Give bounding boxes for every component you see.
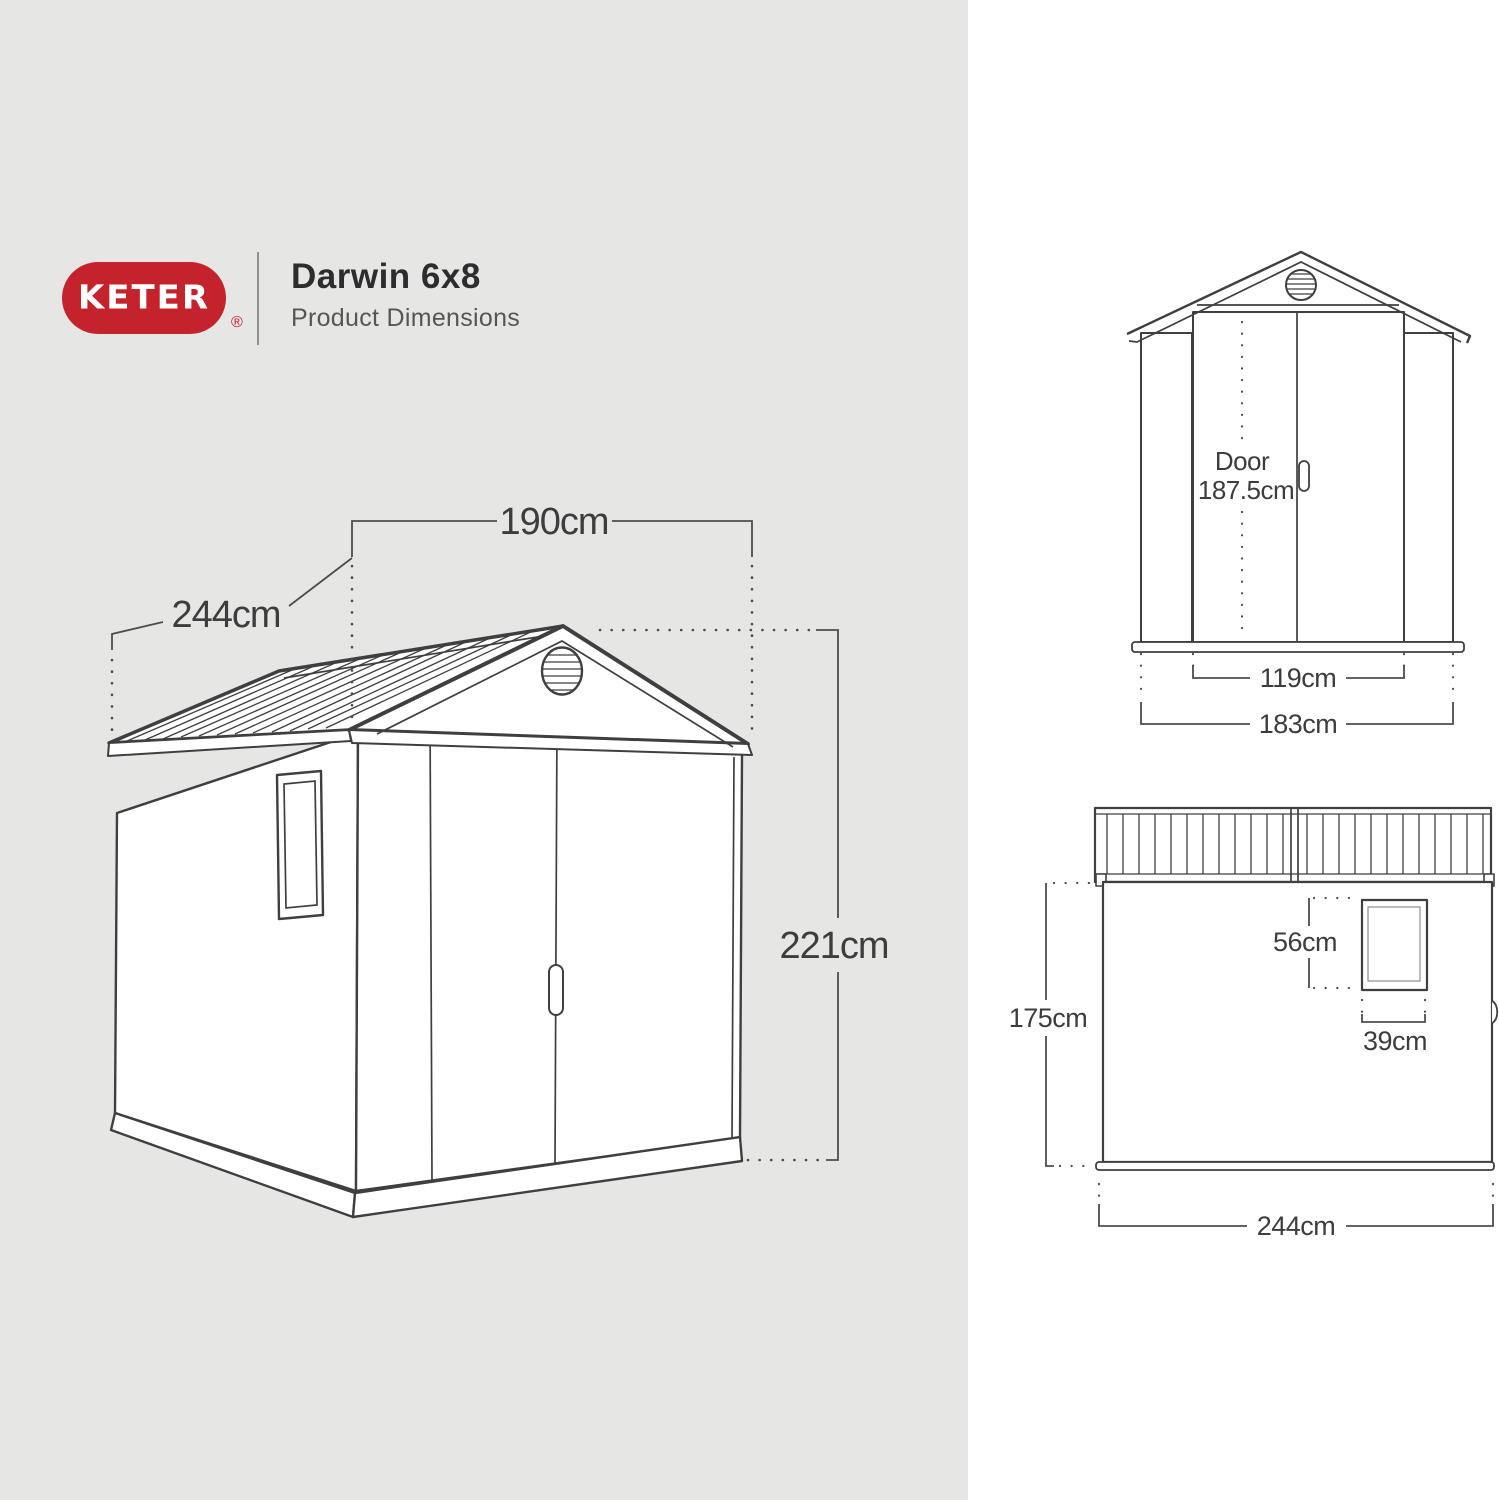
side-elevation-view: 56cm 39cm 175cm 244cm — [1000, 780, 1499, 1250]
dim-door-width-119: 119cm — [1193, 654, 1404, 693]
dim-label-56cm: 56cm — [1273, 927, 1337, 957]
perspective-view: 190cm 244cm 221cm — [60, 460, 900, 1340]
registered-trademark-icon: ® — [231, 314, 243, 332]
keter-logo-text: KETER — [78, 279, 210, 317]
side-base — [1096, 1162, 1494, 1170]
front-wall — [356, 711, 742, 1191]
side-wall-panel — [1103, 882, 1492, 1162]
keter-logo: KETER — [62, 262, 226, 334]
door-label-line2: 187.5cm — [1198, 475, 1294, 505]
side-window-outer-frame — [1362, 900, 1427, 990]
dim-wall-height-175: 175cm — [1009, 883, 1096, 1166]
dim-label-183cm: 183cm — [1259, 709, 1338, 739]
dim-depth-244-side: 244cm — [1099, 1184, 1493, 1241]
header-divider — [257, 252, 259, 345]
side-door-handle-bump — [1492, 1001, 1497, 1023]
front-header-lines — [1193, 305, 1404, 312]
dim-label-221cm: 221cm — [779, 925, 888, 967]
page-subtitle: Product Dimensions — [291, 304, 520, 333]
right-white-panel — [968, 0, 1499, 1500]
page-title: Darwin 6x8 — [291, 258, 520, 297]
door-label-line1: Door — [1215, 446, 1270, 476]
dim-label-190cm: 190cm — [499, 501, 608, 543]
front-door-handle — [1299, 461, 1309, 491]
dim-label-119cm: 119cm — [1260, 663, 1337, 693]
door-handle — [549, 965, 563, 1015]
title-block: Darwin 6x8 Product Dimensions — [291, 258, 520, 333]
dim-label-175cm: 175cm — [1009, 1003, 1088, 1033]
front-right-pillar — [1403, 333, 1453, 642]
front-elevation-view: Door 187.5cm 119cm 183cm — [1020, 240, 1480, 740]
dim-label-244cm-side: 244cm — [1257, 1211, 1336, 1241]
dim-label-39cm: 39cm — [1363, 1026, 1427, 1056]
front-left-pillar — [1141, 333, 1192, 642]
dim-label-244cm: 244cm — [171, 594, 280, 636]
front-base — [1132, 642, 1464, 652]
